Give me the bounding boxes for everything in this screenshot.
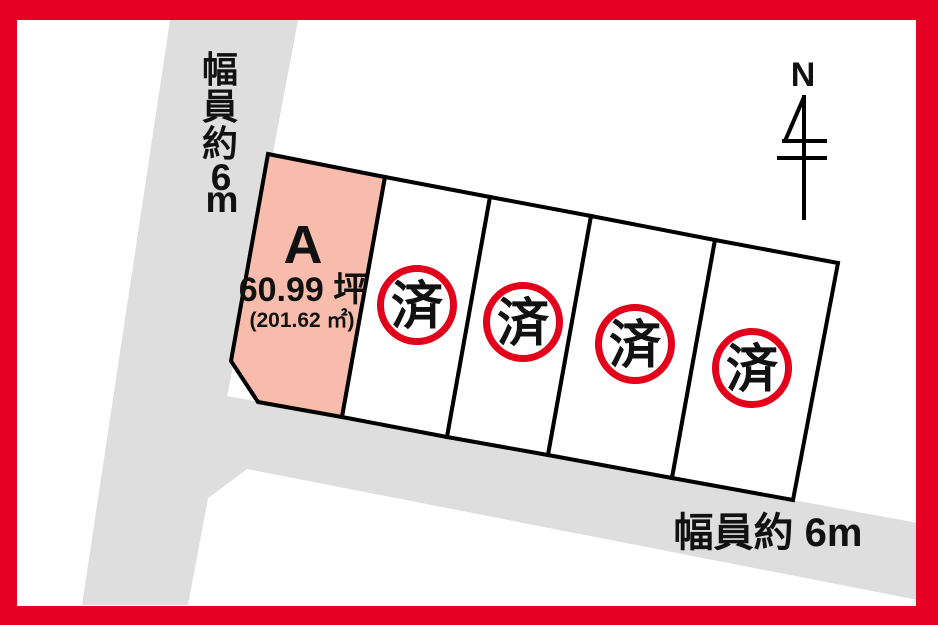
sold-stamp-text: 済 <box>497 295 550 353</box>
sold-stamp: 済 <box>716 332 789 405</box>
sold-stamp-text: 済 <box>726 341 779 399</box>
road-bottom-label: 幅員約 6m <box>674 511 863 555</box>
sold-stamp: 済 <box>599 308 672 381</box>
sold-stamp: 済 <box>487 286 560 359</box>
sold-stamp: 済 <box>381 269 454 342</box>
sold-stamp-text: 済 <box>609 317 662 375</box>
lot-map: 幅 員 約 6 m 幅員約 6m A 60.99 坪 (201.62 ㎡) 済 … <box>0 0 938 625</box>
road-left-label-char: m <box>206 179 239 220</box>
road-left-label-char: 幅 <box>202 49 238 90</box>
road-left-label-char: 員 <box>202 86 238 127</box>
north-label: N <box>791 56 816 94</box>
lot-a-area-sqm: (201.62 ㎡) <box>249 308 354 332</box>
road-left-label: 幅 員 約 6 m <box>202 49 238 220</box>
lot-a-area-tsubo: 60.99 坪 <box>239 271 368 309</box>
lot-a-id: A <box>284 215 323 275</box>
sold-stamp-text: 済 <box>391 278 444 336</box>
